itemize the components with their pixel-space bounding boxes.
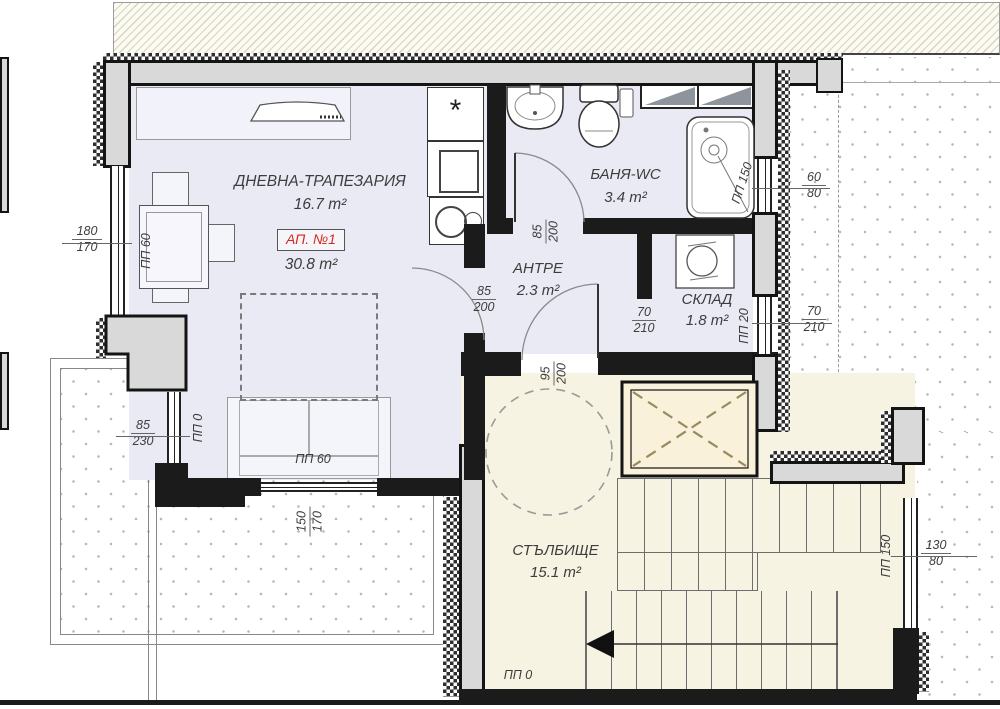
wall-terrace-south: [770, 461, 905, 484]
sofa: [227, 397, 391, 479]
wall-staircase-east-lower: [893, 628, 919, 694]
parapet-living-sw: ПП 0: [191, 405, 205, 451]
bed-dashed-outline: [240, 293, 378, 401]
sofa-cushion-right: [309, 400, 379, 456]
wall-hall-west-upper: [464, 224, 485, 268]
freezer-unit: *: [427, 87, 484, 141]
dim-staircase-window: 130 80: [910, 538, 962, 569]
dim-living-door: 85 200: [460, 284, 508, 315]
insulation-right: [778, 70, 790, 432]
dim-living-south-window: 150 170: [295, 498, 326, 546]
wall-living-south-right: [377, 478, 467, 496]
parapet-staircase-window: ПП 150: [879, 528, 893, 584]
wall-right-col2: [752, 212, 778, 297]
dim-leader-staircase-window: [891, 556, 977, 557]
stair-flight-upper: [617, 478, 881, 553]
staircase-area: 15.1 m²: [478, 564, 633, 581]
wall-storage-west: [637, 232, 652, 299]
parapet-staircase-ground: ПП 0: [488, 668, 548, 682]
adjacent-building-hatch: [113, 2, 1000, 55]
insulation-left-upper: [93, 62, 103, 166]
dim-living-sw-window: 85 230: [120, 418, 166, 449]
hall-name: АНТРЕ: [488, 260, 588, 277]
wall-bath-south-right: [583, 218, 755, 234]
ground-boundary-line: [0, 700, 1000, 705]
dim-leader-west-window: [62, 243, 132, 244]
insulation-terrace-south: [770, 451, 895, 461]
floor-plan: *: [0, 0, 1000, 709]
dim-bath-door: 85 200: [531, 208, 562, 256]
dining-table-inner: [146, 212, 202, 282]
bathroom-name: БАНЯ-WC: [558, 166, 693, 183]
window-living-south: [261, 482, 377, 492]
wall-fragment-left-mid: [0, 352, 9, 430]
staircase-name: СТЪЛБИЩЕ: [478, 542, 633, 559]
window-living-west: [110, 166, 125, 316]
insulation-staircase-west: [443, 497, 459, 697]
oven-inner: [439, 150, 479, 193]
door-east: [757, 297, 772, 354]
bath-window-mullion: [697, 85, 699, 107]
living-room-area: 16.7 m²: [250, 196, 390, 214]
window-living-southwest: [167, 392, 181, 464]
window-bath-east: [757, 159, 772, 212]
cooktop-burner-large: [435, 206, 467, 238]
dim-leader-sw-window: [116, 436, 190, 437]
parapet-living-west: ПП 60: [139, 223, 153, 279]
wall-bath-south-left: [487, 218, 513, 234]
bath-window-glazing-right: [701, 87, 751, 105]
dim-leader-bath-east: [752, 188, 830, 189]
bathroom-area: 3.4 m²: [568, 189, 683, 206]
dim-entry-door: 95 200: [539, 350, 570, 398]
dim-bath-east-window: 60 80: [794, 170, 834, 201]
wall-hall-south-left: [461, 352, 521, 376]
terrace-right-edge-line: [843, 82, 1000, 83]
insulation-left-column: [96, 318, 106, 358]
wall-fragment-left-top: [0, 57, 9, 213]
terrace-right-dashed-boundary: [838, 60, 839, 407]
insulation-terrace-east: [881, 411, 891, 463]
parapet-living-south: ПП 60: [278, 452, 348, 466]
dim-living-west-window: 180 170: [64, 224, 110, 255]
stair-flight-lower: [585, 591, 838, 689]
dim-east-door: 70 210: [792, 304, 836, 335]
tv-cabinet: [136, 87, 351, 140]
wall-terrace-east: [891, 407, 925, 465]
freezer-asterisk: *: [450, 94, 462, 127]
wall-right-col3: [752, 354, 778, 432]
wall-left-upper: [103, 60, 131, 168]
insulation-staircase-east: [919, 632, 929, 692]
wall-hall-south-right: [598, 352, 778, 375]
wall-right-col1: [752, 60, 778, 159]
wall-living-south-left: [243, 478, 261, 496]
wall-kitchen-bath: [487, 84, 506, 234]
parapet-east-door: ПП 20: [737, 303, 751, 349]
bath-window-unit: [640, 83, 758, 109]
dining-chair-top: [152, 172, 189, 208]
wall-top: [103, 60, 843, 86]
sofa-cushion-left: [239, 400, 309, 456]
apartment-number-badge: АП. №1: [277, 229, 345, 251]
bath-window-glazing-left: [645, 87, 695, 105]
wall-topright-column: [816, 58, 843, 93]
living-room-name: ДНЕВНА-ТРАПЕЗАРИЯ: [220, 173, 420, 191]
dim-storage-door: 70 210: [620, 305, 668, 336]
dim-leader-east-door: [752, 323, 832, 324]
apartment-area: 30.8 m²: [269, 256, 353, 274]
stair-flight-middle: [617, 553, 758, 591]
oven: [427, 141, 484, 197]
